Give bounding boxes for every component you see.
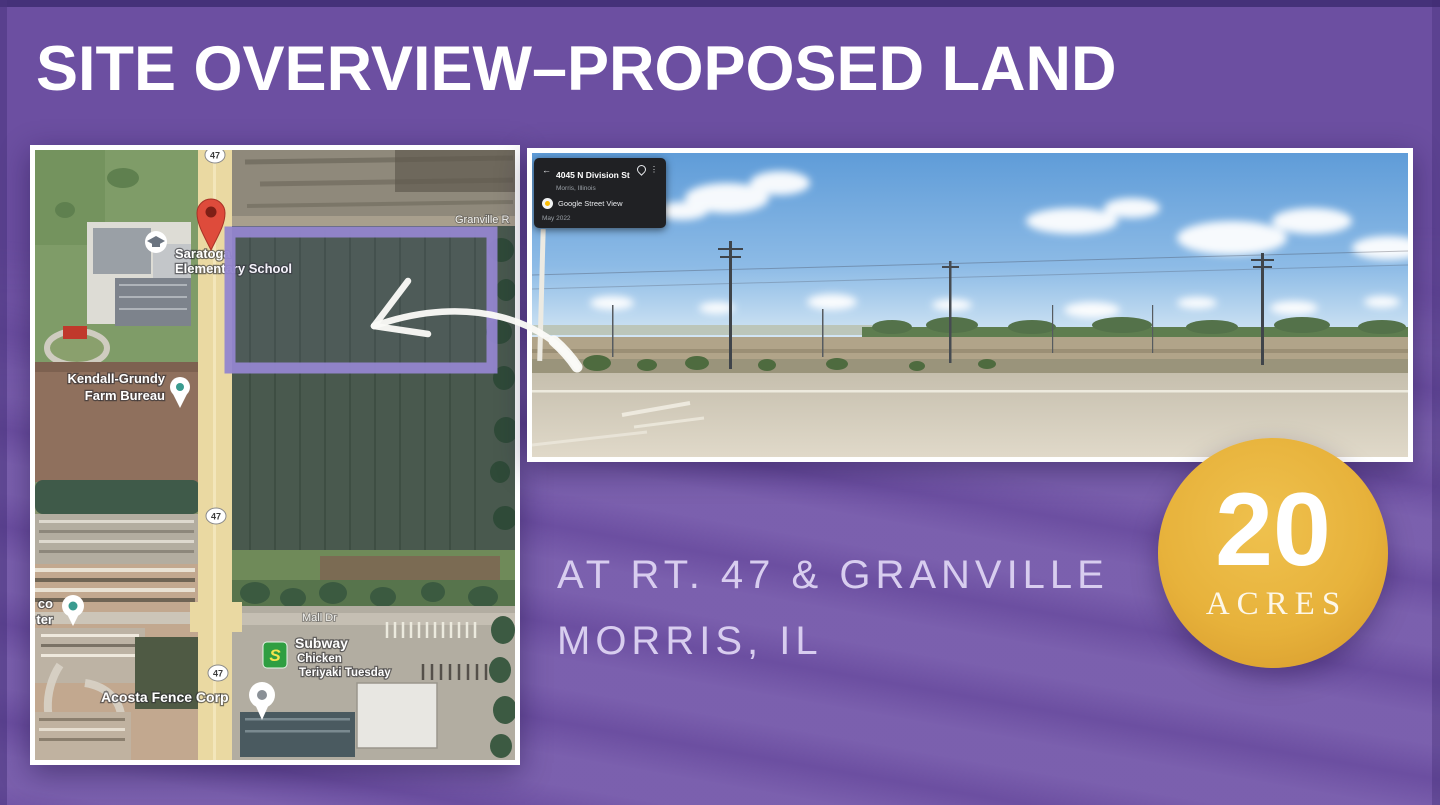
car-row — [41, 654, 139, 657]
streetview-date: May 2022 — [542, 215, 658, 222]
kendall-label-line1: Kendall-Grundy — [67, 371, 165, 386]
acreage-value: 20 — [1215, 478, 1331, 582]
right-edge-band — [1432, 0, 1440, 805]
route-47-shield-top: 47 — [205, 150, 225, 163]
car-row — [41, 644, 139, 647]
parking-line — [119, 284, 187, 286]
left-edge-band — [0, 0, 7, 805]
mall-dr-label: Mall Dr — [302, 612, 337, 624]
granville-road-label: Granville R — [455, 214, 509, 226]
school-marker-icon — [145, 231, 167, 253]
field-streak — [532, 349, 1408, 353]
acreage-unit: ACRES — [1206, 586, 1347, 623]
brown-strip — [320, 556, 500, 582]
route-47-shield-bottom: 47 — [208, 665, 228, 681]
map-tree — [55, 202, 75, 218]
distant-horizon — [532, 325, 872, 335]
mall-dr-road — [232, 613, 515, 625]
trailer-row — [35, 588, 195, 592]
svg-text:47: 47 — [211, 512, 221, 522]
school-roof — [93, 228, 151, 274]
top-edge-band — [0, 0, 1440, 7]
storage-row — [39, 728, 125, 731]
location-text: AT RT. 47 & GRANVILLE MORRIS, IL — [557, 542, 1109, 674]
svg-text:47: 47 — [213, 669, 223, 679]
streetview-address: 4045 N Division St — [556, 170, 630, 180]
lot-row — [39, 540, 194, 543]
location-line1: AT RT. 47 & GRANVILLE — [557, 542, 1109, 608]
partial-label-line2: ter — [36, 612, 53, 627]
subway-sub-label1: Chicken — [297, 653, 342, 665]
parking-line — [119, 308, 187, 310]
svg-text:47: 47 — [210, 151, 220, 161]
acosta-label: Acosta Fence Corp — [101, 689, 229, 705]
storage-row — [39, 738, 125, 741]
slide: { "header": { "title": "SITE OVERVIEW–PR… — [0, 0, 1440, 805]
school-label-line1: Saratoga — [175, 246, 231, 261]
kendall-label-line2: Farm Bureau — [85, 388, 165, 403]
three-dot-menu-icon[interactable]: ⋮ — [650, 166, 658, 174]
partial-label-line1: co — [38, 596, 53, 611]
lot-row — [39, 520, 194, 523]
building-line — [245, 718, 350, 721]
warehouse — [357, 683, 437, 748]
page-title: SITE OVERVIEW–PROPOSED LAND — [36, 36, 1117, 102]
satellite-map-canvas: Saratoga Elementary School Granville R K… — [35, 150, 515, 760]
side-road — [35, 612, 200, 624]
back-arrow-icon[interactable]: ← — [542, 165, 551, 175]
parking-line — [119, 296, 187, 298]
location-pin-icon[interactable] — [635, 163, 648, 176]
map-pond — [35, 480, 200, 514]
storage-row — [39, 718, 125, 721]
streetview-product: Google Street View — [558, 199, 622, 208]
svg-text:S: S — [269, 646, 281, 665]
proposed-land-highlight — [230, 232, 492, 368]
street-view-image: ← 4045 N Division St Morris, Illinois ⋮ … — [527, 148, 1413, 462]
lot-row — [39, 550, 194, 553]
route-47-shield-mid: 47 — [206, 508, 226, 524]
streetview-info-card: ← 4045 N Division St Morris, Illinois ⋮ … — [534, 158, 666, 228]
subway-label: Subway — [295, 635, 348, 651]
car-row — [41, 634, 139, 637]
trailer-row — [35, 598, 195, 602]
subway-sub-label2: Teriyaki Tuesday — [299, 667, 391, 679]
street-view-logo-icon — [542, 198, 553, 209]
satellite-map-image: Saratoga Elementary School Granville R K… — [30, 145, 520, 765]
lane-line — [532, 390, 1408, 393]
streetview-city: Morris, Illinois — [556, 185, 632, 192]
red-building — [63, 326, 87, 339]
map-tree — [107, 168, 139, 188]
subway-logo-icon: S — [263, 642, 287, 668]
location-line2: MORRIS, IL — [557, 608, 1109, 674]
lot-row — [39, 530, 194, 533]
building-line — [245, 730, 350, 733]
trailer-row — [35, 568, 195, 572]
acreage-badge: 20 ACRES — [1158, 438, 1388, 668]
trailer-row — [35, 578, 195, 582]
